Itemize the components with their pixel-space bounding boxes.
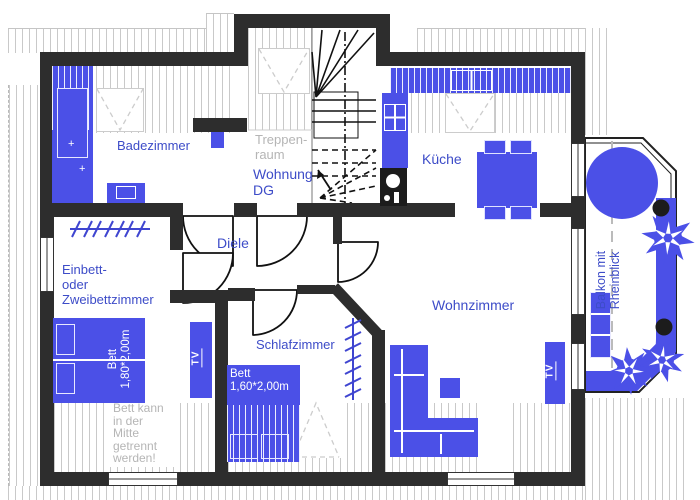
wall-entry-left — [234, 203, 257, 217]
wall-bad-bottom — [40, 203, 173, 217]
label-einbettzimmer: Einbett- oder Zweibettzimmer — [62, 263, 154, 307]
label-balkon-line1: Balkon mit — [594, 217, 608, 309]
tv-einbettzimmer-label: TV — [190, 349, 202, 368]
balcony-dot-1 — [653, 200, 670, 217]
label-treppenraum-line2: raum — [255, 148, 307, 163]
chair-1 — [484, 140, 506, 154]
bed-large-pillow-1 — [56, 324, 75, 355]
label-bed-small-line1: Bett — [230, 368, 289, 381]
label-treppenraum: Treppen- raum — [255, 133, 307, 163]
kitchen-stove-bar — [394, 192, 399, 203]
wall-top-left — [40, 52, 248, 66]
label-wohnung-line2: DG — [253, 183, 313, 199]
label-treppenraum-line1: Treppen- — [255, 133, 307, 148]
wall-left-lower — [40, 292, 54, 486]
label-schlafzimmer: Schlafzimmer — [256, 338, 335, 353]
wall-bottom-3 — [515, 472, 585, 486]
sofa-line-2 — [394, 374, 424, 376]
wall-kueche-bottom — [297, 203, 455, 217]
label-bed-note: Bett kann in der Mitte getrennt werden! — [113, 402, 164, 465]
door-arcs — [183, 216, 378, 335]
wall-diele-einbett — [170, 203, 183, 250]
label-balkon-line2: Rheinblick — [608, 217, 622, 309]
wall-kueche-right — [540, 203, 571, 217]
label-wohnzimmer: Wohnzimmer — [432, 298, 514, 314]
wall-wohn-stub — [333, 216, 342, 244]
label-badezimmer: Badezimmer — [117, 139, 190, 154]
label-balkon: Balkon mit Rheinblick — [594, 217, 623, 309]
wall-schlaf-top — [228, 288, 255, 301]
label-bed-note-line5: werden! — [113, 452, 164, 465]
label-wohnung-line1: Wohnung — [253, 167, 313, 183]
wall-diele-thin — [297, 285, 335, 294]
kitchen-sink — [451, 70, 492, 91]
stairs — [312, 30, 376, 203]
window-balcony-door — [571, 228, 585, 315]
window-right-wohn — [571, 343, 585, 390]
balcony-table — [586, 147, 658, 219]
bath-sink-basin — [116, 186, 136, 199]
wall-right-1 — [571, 52, 585, 143]
window-right-kueche — [571, 143, 585, 197]
window-bottom-einbett — [108, 472, 178, 486]
kitchen-stove-dot — [384, 195, 390, 201]
wall-stair-top — [234, 14, 390, 28]
label-einbett-line3: Zweibettzimmer — [62, 293, 154, 308]
label-kueche: Küche — [422, 152, 462, 168]
window-left — [40, 237, 54, 292]
wall-right-2 — [571, 197, 585, 228]
label-einbett-line2: oder — [62, 278, 154, 293]
window-bottom-wohn — [447, 472, 515, 486]
label-einbett-line1: Einbett- — [62, 263, 154, 278]
wall-schlaf-right — [372, 330, 385, 472]
sofa-line-1 — [401, 349, 403, 453]
bath-radiator — [211, 132, 224, 148]
wall-top-right — [376, 52, 585, 66]
wall-bottom-1 — [40, 472, 108, 486]
door-schlafzimmer — [253, 290, 297, 335]
wall-bad-stub — [193, 118, 247, 132]
tv-wohnzimmer-label: TV — [544, 362, 556, 381]
balcony-dot-2 — [656, 319, 673, 336]
wall-diagonal — [334, 287, 378, 334]
kitchen-appliance — [384, 104, 406, 131]
wardrobe-symbol-schlaf — [345, 318, 361, 400]
door-entry — [257, 216, 307, 266]
wall-stair-left — [234, 14, 248, 66]
kitchen-stove-burner — [386, 174, 400, 188]
bed-small-pillow-1 — [230, 434, 258, 459]
label-bed-note-line3: Mitte — [113, 427, 164, 440]
label-diele: Diele — [217, 236, 249, 252]
side-table — [440, 378, 460, 398]
bed-small-pillow-2 — [261, 434, 289, 459]
chair-3 — [484, 206, 506, 220]
label-bed-large-line2: 1,80*2,00m — [120, 319, 133, 399]
bed-large-pillow-2 — [56, 363, 75, 394]
dining-table — [477, 152, 537, 208]
wall-bottom-2 — [178, 472, 447, 486]
chair-2 — [510, 140, 532, 154]
sofa-horizontal — [390, 418, 478, 457]
label-bed-small: Bett 1,60*2,00m — [230, 368, 289, 394]
bath-drain-cross: + — [79, 163, 85, 175]
bath-tub-cross: + — [68, 138, 74, 150]
label-wohnung-dg: Wohnung DG — [253, 167, 313, 199]
chair-4 — [510, 206, 532, 220]
door-wohnzimmer — [338, 242, 378, 282]
sofa-line-4 — [440, 434, 442, 454]
floor-plan: + + TV TV Badezimmer Treppen- raum Wohnu… — [0, 0, 700, 500]
wall-right-3 — [571, 315, 585, 343]
wardrobe-symbol-einbett — [70, 221, 150, 237]
label-bed-small-line2: 1,60*2,00m — [230, 381, 289, 394]
label-bed-large: Bett 1,80*2,00m — [107, 319, 133, 399]
label-bed-large-line1: Bett — [107, 319, 120, 399]
label-bed-note-line1: Bett kann — [113, 402, 164, 415]
sofa-line-3 — [394, 430, 474, 432]
